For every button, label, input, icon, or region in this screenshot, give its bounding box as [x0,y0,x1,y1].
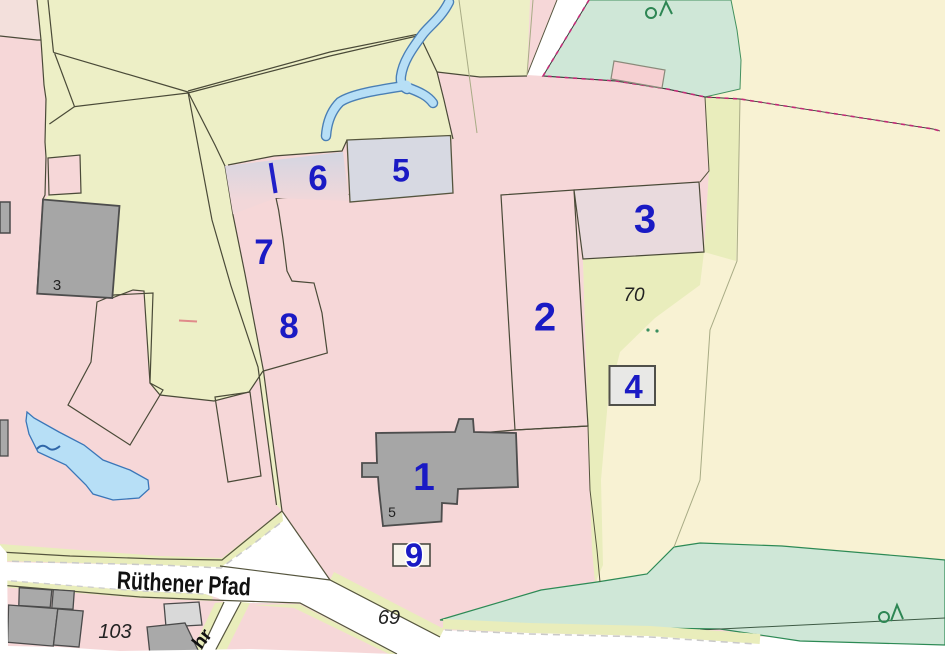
svg-text:3: 3 [53,277,61,294]
svg-text:4: 4 [624,368,643,405]
svg-text:7: 7 [254,233,273,272]
svg-text:3: 3 [634,198,656,242]
svg-text:5: 5 [388,504,396,520]
svg-text:103: 103 [98,621,131,643]
svg-text:8: 8 [279,307,298,346]
svg-text:2: 2 [534,296,556,340]
svg-text:69: 69 [378,607,400,629]
svg-text:1: 1 [413,456,435,499]
svg-text:70: 70 [623,285,645,306]
svg-text:9: 9 [405,537,423,574]
svg-text:6: 6 [308,159,327,198]
svg-text:5: 5 [392,153,410,189]
